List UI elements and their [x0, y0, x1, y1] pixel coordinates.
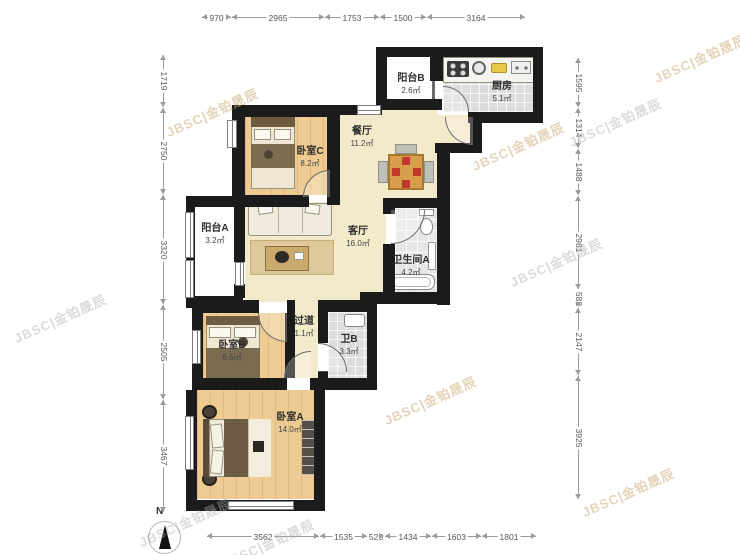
room-name: 餐厅 — [352, 126, 372, 139]
watermark: JBSC|金铂晟辰 — [11, 289, 109, 347]
window-icon — [235, 262, 244, 286]
bed-pillow — [234, 327, 256, 338]
dimension-value: 1314 — [574, 117, 584, 140]
bed-pillow — [209, 327, 231, 338]
room-name: 阳台A — [201, 223, 228, 236]
dimension-value: 3320 — [159, 238, 169, 261]
nightstand-icon — [202, 405, 217, 419]
dimension-right: 3925 — [578, 376, 579, 499]
dimension-value: 2965 — [267, 13, 290, 23]
window-icon — [357, 105, 381, 115]
dimension-top: 1753 — [325, 17, 379, 18]
room-label-bedroom-a: 卧室A14.0㎡ — [276, 412, 303, 435]
door-leaf-icon — [432, 81, 435, 99]
dimension-value: 3925 — [574, 426, 584, 449]
bed-headboard — [206, 316, 260, 325]
dimension-value: 2981 — [574, 231, 584, 254]
dimension-value: 1535 — [332, 532, 355, 542]
kitchen-sink-icon — [472, 61, 486, 75]
room-area: 1.1㎡ — [294, 328, 313, 338]
dining-chair — [395, 144, 417, 154]
room-label-living: 客厅16.0㎡ — [346, 226, 370, 249]
dimension-bottom: 1535 — [320, 536, 367, 537]
dimension-value: 525 — [367, 532, 385, 542]
bed-pillow — [210, 423, 224, 448]
kitchen-appliance-icon — [511, 61, 531, 74]
stove-icon — [447, 61, 469, 77]
dimension-value: 1603 — [445, 532, 468, 542]
room-label-bathroom-b: 卫B3.3㎡ — [339, 334, 358, 357]
room-label-balcony-a: 阳台A3.2㎡ — [201, 223, 228, 246]
washbasin-icon — [344, 314, 365, 327]
wall — [367, 300, 377, 390]
dimension-value: 2147 — [574, 330, 584, 353]
room-area: 3.3㎡ — [339, 346, 358, 356]
dimension-top: 1500 — [380, 17, 426, 18]
dimension-bottom: 525 — [368, 536, 384, 537]
paper-icon — [294, 252, 304, 260]
room-area: 3.2㎡ — [205, 235, 224, 245]
bed-pillow — [210, 449, 224, 474]
window-icon — [228, 501, 294, 510]
dimension-value: 2750 — [159, 140, 169, 163]
dimension-bottom: 1603 — [432, 536, 481, 537]
dimension-value: 3562 — [252, 532, 275, 542]
watermark: JBSC|金铂晟辰 — [381, 371, 479, 429]
room-name: 阳台B — [397, 73, 424, 86]
wall — [234, 284, 245, 298]
room-area: 8.2㎡ — [300, 158, 319, 168]
dimension-top: 3164 — [427, 17, 525, 18]
wall — [430, 47, 443, 81]
room-area: 6.5㎡ — [222, 352, 241, 362]
bed-pillow — [254, 129, 271, 140]
dimension-value: 970 — [207, 13, 225, 23]
wall — [443, 47, 543, 57]
dimension-left: 3320 — [163, 195, 164, 304]
dimension-value: 1500 — [392, 13, 415, 23]
watermark: JBSC|金铂晟辰 — [507, 233, 605, 291]
room-label-bedroom-c: 卧室C8.2㎡ — [296, 146, 323, 169]
dimension-value: 1801 — [498, 532, 521, 542]
window-icon — [185, 260, 194, 298]
dimension-left: 2505 — [163, 305, 164, 399]
window-icon — [185, 416, 194, 470]
dimension-value: 3467 — [159, 445, 169, 468]
chair-cushion — [402, 180, 410, 188]
dimension-value: 1595 — [574, 71, 584, 94]
room-label-kitchen: 厨房5.1㎡ — [492, 81, 512, 104]
room-area: 4.2㎡ — [401, 267, 420, 277]
chair-cushion — [402, 157, 410, 165]
bed-blanket — [251, 144, 295, 168]
bed-blanket — [224, 419, 248, 477]
room-name: 卫生间A — [392, 255, 429, 268]
room-name: 客厅 — [348, 226, 368, 239]
dimension-value: 1488 — [574, 161, 584, 184]
dimension-top: 2965 — [232, 17, 324, 18]
kitchen-tray-icon — [491, 63, 507, 73]
dimension-right: 1314 — [578, 108, 579, 148]
wall — [192, 378, 287, 390]
kettle-icon — [275, 251, 289, 263]
dimension-bottom: 1801 — [482, 536, 536, 537]
wall — [318, 371, 328, 390]
window-icon — [192, 330, 201, 364]
dimension-value: 1719 — [159, 70, 169, 93]
bed-cushion — [253, 441, 264, 452]
window-icon — [227, 120, 237, 148]
dimension-value: 2505 — [159, 341, 169, 364]
dimension-right: 2981 — [578, 196, 579, 289]
room-label-dining: 餐厅11.2㎡ — [351, 126, 374, 149]
wall — [243, 105, 340, 117]
north-arrow-icon — [159, 525, 171, 549]
room-area: 16.0㎡ — [346, 238, 370, 248]
dimension-left: 3467 — [163, 400, 164, 512]
dining-chair — [424, 161, 434, 183]
dimension-bottom: 3562 — [207, 536, 319, 537]
dimension-left: 2750 — [163, 108, 164, 194]
dimension-right: 2147 — [578, 308, 579, 375]
bed-pillow — [274, 129, 291, 140]
dimension-value: 3164 — [465, 13, 488, 23]
wall — [378, 99, 442, 110]
bed-cushion — [264, 150, 273, 159]
room-label-bathroom-a: 卫生间A4.2㎡ — [392, 255, 429, 278]
dimension-right: 1595 — [578, 58, 579, 107]
watermark: JBSC|金铂晟辰 — [469, 117, 567, 175]
window-icon — [185, 212, 194, 258]
dimension-right: 582 — [578, 290, 579, 307]
room-area: 14.0㎡ — [278, 424, 302, 434]
wall — [287, 300, 295, 313]
watermark: JBSC|金铂晟辰 — [651, 29, 740, 87]
dimension-top: 970 — [202, 17, 231, 18]
dimension-value: 1753 — [341, 13, 364, 23]
balcony-a-floor — [195, 207, 234, 296]
room-name: 卫B — [340, 334, 357, 347]
wall — [310, 378, 318, 390]
watermark: JBSC|金铂晟辰 — [579, 463, 677, 521]
wall — [437, 143, 450, 305]
room-label-balcony-b: 阳台B2.6㎡ — [397, 73, 424, 96]
room-name: 卧室A — [276, 412, 303, 425]
room-area: 5.1㎡ — [492, 93, 511, 103]
dimension-value: 582 — [574, 289, 584, 307]
room-area: 11.2㎡ — [351, 138, 374, 148]
sofa-cushion-line — [302, 206, 303, 233]
sofa-cushion-line — [278, 206, 279, 233]
dimension-value: 1434 — [397, 532, 420, 542]
dimension-bottom: 1434 — [385, 536, 431, 537]
dining-chair — [378, 161, 388, 183]
floor-plan: 阳台B2.6㎡ 厨房5.1㎡ 餐厅11.2㎡ 卧室C8.2㎡ 阳台A3.2㎡ 客… — [0, 0, 740, 555]
room-area: 2.6㎡ — [401, 85, 420, 95]
chair-cushion — [392, 168, 400, 176]
wall — [234, 198, 245, 262]
room-label-hallway: 过道1.1㎡ — [294, 316, 314, 339]
room-label-bedroom-b: 卧室B6.5㎡ — [218, 340, 245, 363]
room-name: 卧室C — [296, 146, 323, 159]
wall — [383, 292, 450, 304]
room-name: 厨房 — [492, 81, 512, 94]
chair-cushion — [413, 168, 421, 176]
dimension-right: 1488 — [578, 149, 579, 195]
room-name: 过道 — [294, 316, 314, 329]
bed-headboard — [251, 117, 295, 127]
bathtub-inner — [393, 277, 431, 287]
wall — [318, 300, 328, 343]
room-name: 卧室B — [218, 340, 245, 353]
wall — [360, 292, 390, 304]
dimension-left: 1719 — [163, 55, 164, 107]
wall — [314, 390, 325, 511]
